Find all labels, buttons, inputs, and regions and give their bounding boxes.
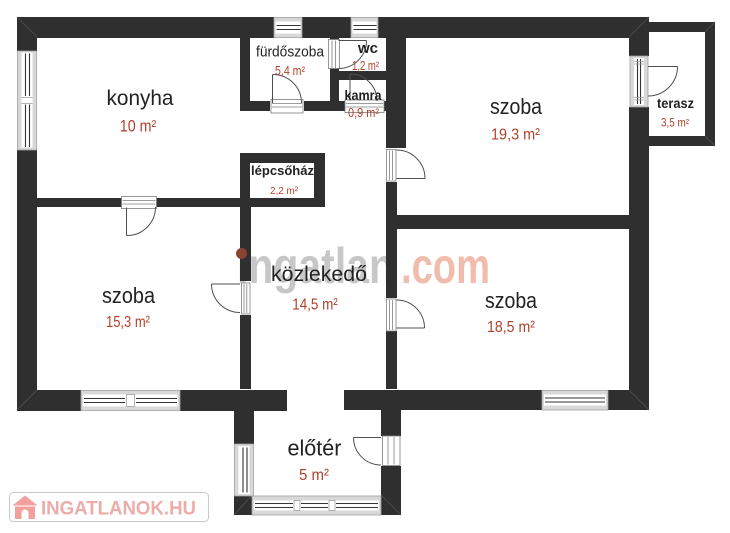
- svg-text:2,2 m²: 2,2 m²: [270, 185, 298, 197]
- svg-text:19,3 m²: 19,3 m²: [491, 127, 541, 144]
- svg-text:10 m²: 10 m²: [120, 118, 157, 136]
- svg-text:szoba: szoba: [485, 288, 538, 313]
- svg-text:szoba: szoba: [490, 94, 543, 119]
- svg-text:14,5 m²: 14,5 m²: [292, 297, 338, 314]
- svg-text:terasz: terasz: [657, 95, 694, 111]
- svg-text:közlekedő: közlekedő: [271, 263, 367, 286]
- svg-text:konyha: konyha: [107, 86, 174, 110]
- svg-text:5,4 m²: 5,4 m²: [275, 64, 305, 78]
- svg-text:18,5 m²: 18,5 m²: [487, 319, 536, 336]
- svg-text:.com: .com: [401, 238, 490, 294]
- svg-text:előtér: előtér: [288, 436, 342, 461]
- svg-text:5 m²: 5 m²: [299, 467, 330, 484]
- svg-text:0,9 m²: 0,9 m²: [348, 106, 379, 120]
- svg-text:3,5 m²: 3,5 m²: [661, 118, 689, 130]
- svg-text:fürdőszoba: fürdőszoba: [256, 44, 325, 61]
- svg-text:1,2 m²: 1,2 m²: [352, 59, 379, 73]
- svg-text:INGATLANOK.HU: INGATLANOK.HU: [41, 499, 196, 520]
- svg-text:lépcsőház: lépcsőház: [251, 164, 314, 178]
- svg-text:wc: wc: [357, 40, 378, 57]
- svg-text:szoba: szoba: [102, 283, 156, 308]
- svg-text:kamra: kamra: [345, 87, 382, 103]
- svg-text:15,3 m²: 15,3 m²: [106, 314, 151, 331]
